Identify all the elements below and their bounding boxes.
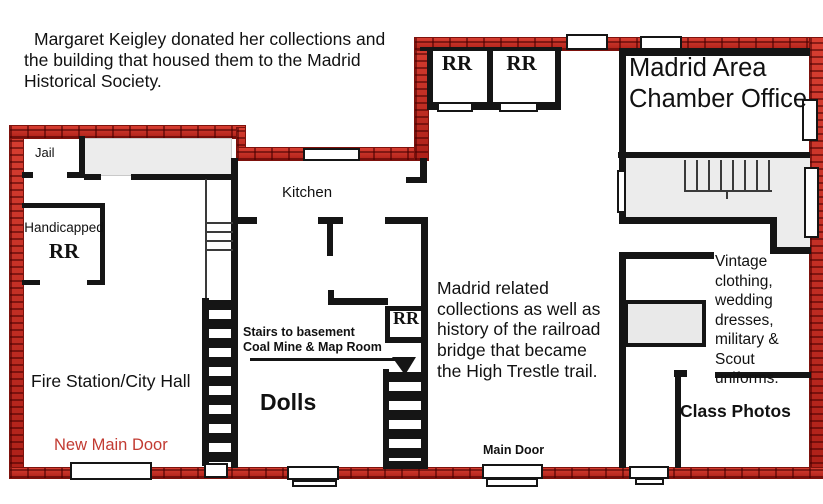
dolls-door-step <box>292 480 337 487</box>
landing-bottom-wall <box>619 217 777 224</box>
collections-note: Madrid related collections as well as hi… <box>437 278 600 381</box>
landing-door <box>617 170 626 213</box>
main-staircase-tread <box>209 395 231 405</box>
jail-label: Jail <box>35 145 55 160</box>
landing-stair-tread-line <box>756 160 758 190</box>
stair-landing-area <box>626 158 810 218</box>
landing-stair-base-line <box>684 190 772 192</box>
main-door-label: Main Door <box>483 443 544 458</box>
staircase-exit-opening <box>204 463 228 478</box>
main-door-opening <box>482 464 543 479</box>
rr2-door <box>499 102 538 112</box>
closet-bottom-wall-right <box>131 174 232 180</box>
main-staircase-tread <box>209 357 231 367</box>
basement-staircase-tread <box>389 429 421 439</box>
right-door-step <box>635 478 664 485</box>
new-main-door-opening <box>70 462 152 480</box>
kitchen-bottom-wall-mid <box>318 217 343 224</box>
exterior-wall-left <box>10 126 23 478</box>
display-case <box>624 300 706 347</box>
landing-stair-tread-line <box>684 160 686 190</box>
closet-area <box>84 138 232 176</box>
landing-stair-tread-line <box>768 160 770 190</box>
fire-station-label: Fire Station/City Hall <box>31 371 191 392</box>
landing-stair-tread-line <box>708 160 710 190</box>
basement-staircase-tread <box>389 391 421 401</box>
dolls-door-opening <box>287 466 339 480</box>
rr1-label: RR <box>427 51 487 76</box>
handicapped-rr-bottom-wall-right <box>87 280 105 285</box>
class-photos-label: Class Photos <box>680 401 791 422</box>
landing-stair-tread-line <box>696 160 698 190</box>
upper-stair-tread <box>207 249 233 251</box>
new-main-door-label: New Main Door <box>54 436 168 455</box>
dolls-label: Dolls <box>260 389 316 416</box>
nook-wall <box>328 298 388 305</box>
main-staircase-left-rail <box>202 298 209 466</box>
basement-staircase-tread <box>389 410 421 420</box>
kitchen-window <box>303 148 360 161</box>
basement-staircase-bottom <box>383 461 428 469</box>
upper-stair-tread <box>207 231 233 233</box>
right-window-2 <box>804 167 819 238</box>
class-photos-left-wall <box>675 376 681 468</box>
main-staircase-tread <box>209 319 231 329</box>
vintage-left-wall <box>619 252 626 468</box>
handicapped-rr-top-wall <box>22 203 105 208</box>
upper-stair-tread <box>207 240 233 242</box>
mid-rr-label: RR <box>388 308 424 329</box>
basement-stairs-note: Stairs to basement Coal Mine & Map Room <box>243 325 382 356</box>
jail-bottom-wall-right <box>67 172 84 178</box>
landing-stair-tread-line <box>720 160 722 190</box>
main-staircase-tread <box>209 414 231 424</box>
mid-rr-bottom-wall <box>385 337 426 343</box>
jail-bottom-wall-left <box>22 172 33 178</box>
main-door-step <box>486 478 538 487</box>
landing-stair-tread-line <box>744 160 746 190</box>
landing-stair-tread-line <box>732 160 734 190</box>
dolls-right-wall <box>421 218 428 468</box>
nook-wall-stub <box>328 290 334 298</box>
handicapped-rr-initials: RR <box>24 239 104 264</box>
rr2-label: RR <box>488 51 555 76</box>
kitchen-doorframe-foot <box>406 177 427 183</box>
central-wall <box>231 158 238 468</box>
kitchen-bottom-wall-left <box>233 217 257 224</box>
stairs-arrow-line <box>250 358 408 361</box>
handicapped-rr-label: Handicapped <box>24 220 104 236</box>
top-window-2 <box>640 36 682 50</box>
basement-staircase-tread <box>389 448 421 458</box>
chamber-office-label: Madrid Area Chamber Office <box>629 53 807 114</box>
kitchen-wall-stem <box>327 224 333 256</box>
landing-stair-tick <box>726 192 728 199</box>
exterior-wall-top-left <box>10 126 245 138</box>
handicapped-rr-bottom-wall-left <box>22 280 40 285</box>
main-staircase-tread <box>209 376 231 386</box>
jail-right-wall <box>79 136 85 176</box>
vintage-top-wall <box>626 252 714 259</box>
donation-note: Margaret Keigley donated her collections… <box>24 29 424 92</box>
rr2-right-wall <box>555 50 561 102</box>
top-window-1 <box>566 34 608 50</box>
closet-bottom-wall-left <box>84 174 101 180</box>
main-staircase-tread <box>209 452 231 462</box>
upper-stair-tread <box>207 222 233 224</box>
main-staircase-tread <box>209 433 231 443</box>
main-staircase-tread <box>209 338 231 348</box>
stairs-arrow-head-icon <box>392 357 416 375</box>
main-staircase-tread <box>209 300 231 310</box>
museum-floor-plan: Margaret Keigley donated her collections… <box>0 0 823 504</box>
vintage-note: Vintage clothing, wedding dresses, milit… <box>715 252 779 389</box>
rr1-door <box>437 102 473 112</box>
kitchen-label: Kitchen <box>282 184 332 202</box>
